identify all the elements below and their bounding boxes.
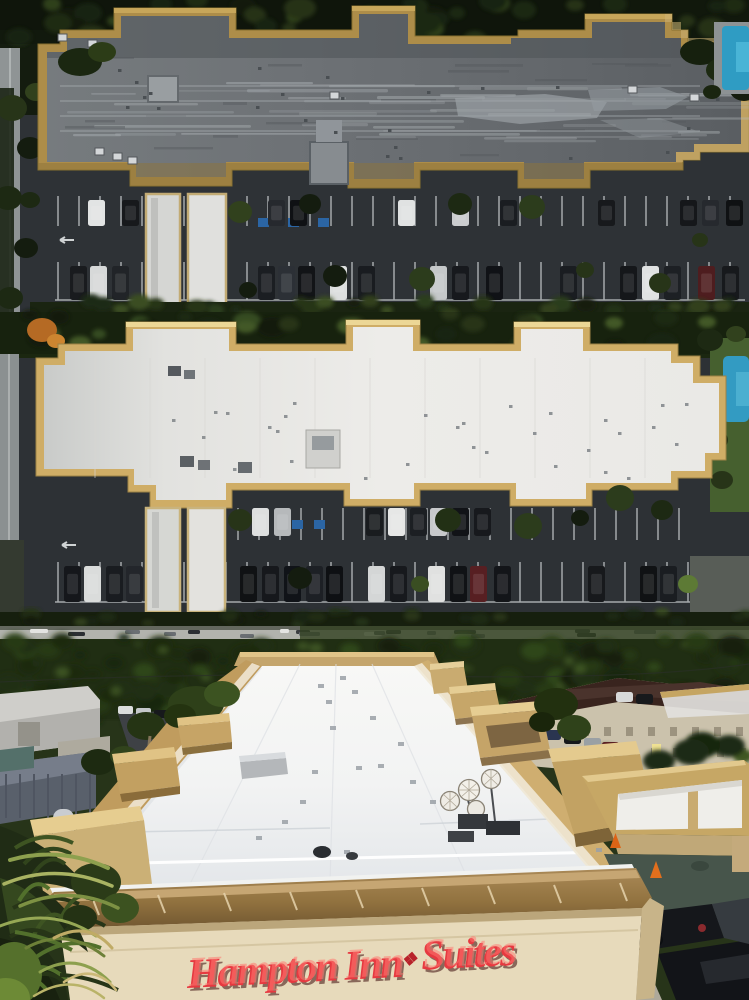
svg-text:Suites: Suites — [422, 927, 519, 978]
svg-text:❖: ❖ — [401, 949, 419, 970]
